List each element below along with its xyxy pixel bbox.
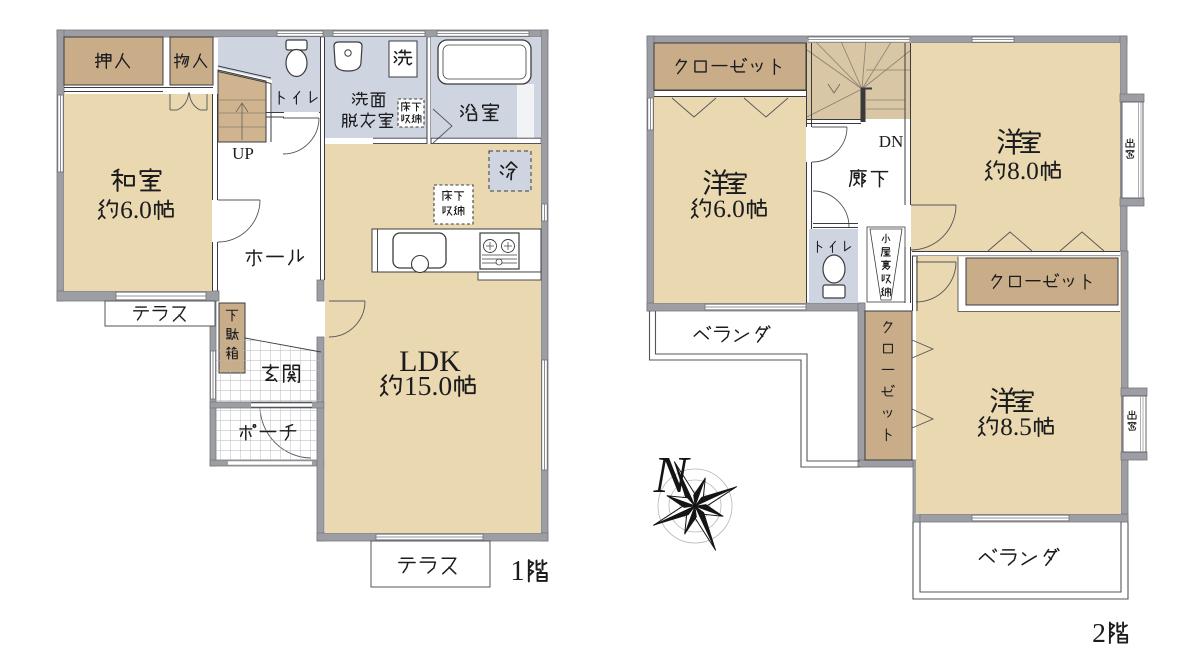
svg-text:8.0: 8.0 bbox=[1007, 157, 1039, 185]
svg-text:N: N bbox=[653, 447, 692, 504]
svg-text:6.0: 6.0 bbox=[120, 196, 152, 224]
svg-text:洋: 洋 bbox=[702, 168, 730, 199]
svg-text:2: 2 bbox=[1092, 617, 1106, 648]
svg-text:8.5: 8.5 bbox=[1000, 413, 1032, 441]
svg-text:DN: DN bbox=[879, 132, 904, 151]
svg-text:1: 1 bbox=[510, 556, 524, 587]
svg-text:洋: 洋 bbox=[989, 386, 1017, 417]
svg-text:洋: 洋 bbox=[996, 127, 1024, 158]
svg-text:15.0: 15.0 bbox=[404, 370, 452, 401]
svg-text:UP: UP bbox=[232, 144, 254, 163]
svg-text:6.0: 6.0 bbox=[713, 195, 745, 223]
